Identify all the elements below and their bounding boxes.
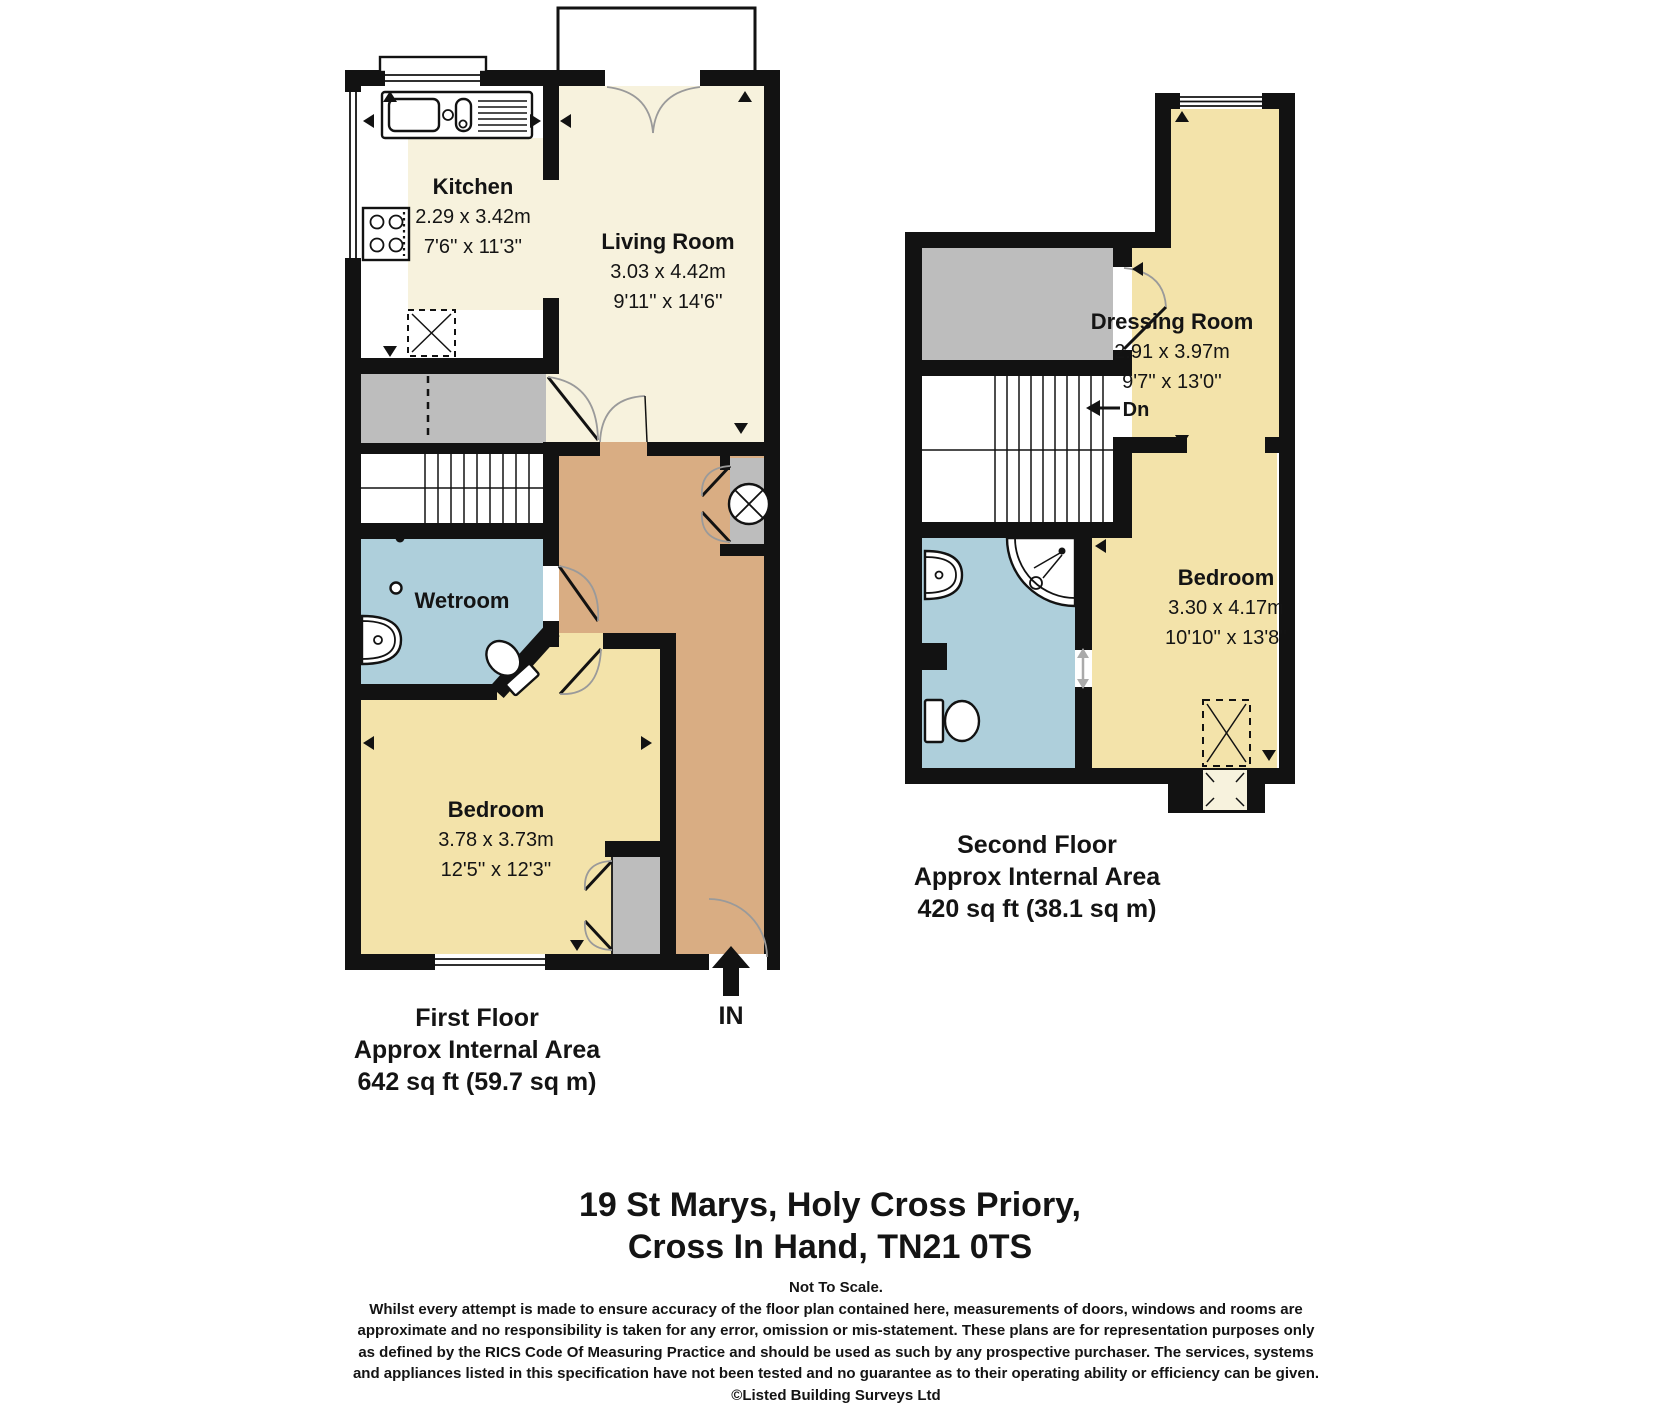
bedroom-first-size-metric: 3.78 x 3.73m bbox=[438, 825, 554, 855]
drain-icon bbox=[391, 583, 402, 594]
dressing-room-size-metric: 2.91 x 3.97m bbox=[1091, 337, 1254, 367]
second-floor-title: Second Floor bbox=[914, 829, 1160, 861]
chimney-stub bbox=[922, 643, 947, 670]
kitchen-sink-icon bbox=[382, 92, 532, 138]
second-floor-caption: Second Floor Approx Internal Area 420 sq… bbox=[914, 829, 1160, 925]
living-room-label: Living Room 3.03 x 4.42m 9'11'' x 14'6'' bbox=[601, 227, 734, 317]
second-floor-area-value: 420 sq ft (38.1 sq m) bbox=[914, 893, 1160, 925]
dressing-room-size-imperial: 9'7'' x 13'0'' bbox=[1091, 367, 1254, 397]
bedroom-second-name: Bedroom bbox=[1165, 563, 1287, 593]
disclaimer-line-1: Whilst every attempt is made to ensure a… bbox=[353, 1299, 1319, 1321]
living-room-size-metric: 3.03 x 4.42m bbox=[601, 257, 734, 287]
disclaimer-block: Not To Scale. Whilst every attempt is ma… bbox=[353, 1277, 1319, 1406]
disclaimer-line-3: as defined by the RICS Code Of Measuring… bbox=[353, 1342, 1319, 1364]
door-hinge-dot bbox=[396, 534, 405, 543]
bedroom-second-size-metric: 3.30 x 4.17m bbox=[1165, 593, 1287, 623]
bedroom-first-name: Bedroom bbox=[438, 795, 554, 825]
bedroom-second-label: Bedroom 3.30 x 4.17m 10'10'' x 13'8'' bbox=[1165, 563, 1287, 653]
wardrobe-area bbox=[612, 857, 660, 954]
first-floor-area-value: 642 sq ft (59.7 sq m) bbox=[354, 1066, 600, 1098]
entrance-label: IN bbox=[719, 1002, 744, 1030]
living-room-size-imperial: 9'11'' x 14'6'' bbox=[601, 287, 734, 317]
bedroom-second-size-imperial: 10'10'' x 13'8'' bbox=[1165, 623, 1287, 653]
kitchen-name: Kitchen bbox=[415, 172, 531, 202]
first-floor-plan bbox=[345, 8, 780, 996]
copyright-line: ©Listed Building Surveys Ltd bbox=[353, 1385, 1319, 1407]
kitchen-label: Kitchen 2.29 x 3.42m 7'6'' x 11'3'' bbox=[415, 172, 531, 262]
dressing-room-name: Dressing Room bbox=[1091, 307, 1254, 337]
hallway-lower bbox=[676, 637, 764, 954]
second-floor-area-label: Approx Internal Area bbox=[914, 861, 1160, 893]
appliance-space-icon bbox=[408, 310, 455, 356]
address-line-2: Cross In Hand, TN21 0TS bbox=[579, 1226, 1081, 1268]
second-floor-plan bbox=[905, 93, 1295, 813]
first-floor-area-label: Approx Internal Area bbox=[354, 1034, 600, 1066]
stairs-down-label: Dn bbox=[1123, 399, 1150, 421]
bedroom-first-label: Bedroom 3.78 x 3.73m 12'5'' x 12'3'' bbox=[438, 795, 554, 885]
landing-area bbox=[361, 374, 546, 443]
property-address: 19 St Marys, Holy Cross Priory, Cross In… bbox=[579, 1184, 1081, 1268]
first-floor-title: First Floor bbox=[354, 1002, 600, 1034]
dressing-room-window bbox=[1180, 93, 1262, 109]
scale-note: Not To Scale. bbox=[353, 1277, 1319, 1299]
address-line-1: 19 St Marys, Holy Cross Priory, bbox=[579, 1184, 1081, 1226]
wetroom-label: Wetroom bbox=[415, 586, 510, 616]
porch-outline bbox=[558, 8, 755, 74]
bedroom-first-size-imperial: 12'5'' x 12'3'' bbox=[438, 855, 554, 885]
bathroom-toilet-icon bbox=[925, 700, 979, 742]
kitchen-size-metric: 2.29 x 3.42m bbox=[415, 202, 531, 232]
kitchen-window-sill bbox=[380, 57, 486, 72]
first-floor-caption: First Floor Approx Internal Area 642 sq … bbox=[354, 1002, 600, 1098]
wetroom-name: Wetroom bbox=[415, 586, 510, 616]
room-dressing bbox=[1132, 109, 1279, 453]
storage-area bbox=[922, 248, 1113, 360]
boiler-icon bbox=[729, 484, 769, 524]
kitchen-size-imperial: 7'6'' x 11'3'' bbox=[415, 232, 531, 262]
disclaimer-line-4: and appliances listed in this specificat… bbox=[353, 1363, 1319, 1385]
living-room-name: Living Room bbox=[601, 227, 734, 257]
disclaimer-line-2: approximate and no responsibility is tak… bbox=[353, 1320, 1319, 1342]
hob-icon bbox=[363, 208, 409, 260]
floorplan-page: Kitchen 2.29 x 3.42m 7'6'' x 11'3'' Livi… bbox=[0, 0, 1672, 1412]
dressing-room-label: Dressing Room 2.91 x 3.97m 9'7'' x 13'0'… bbox=[1091, 307, 1254, 397]
